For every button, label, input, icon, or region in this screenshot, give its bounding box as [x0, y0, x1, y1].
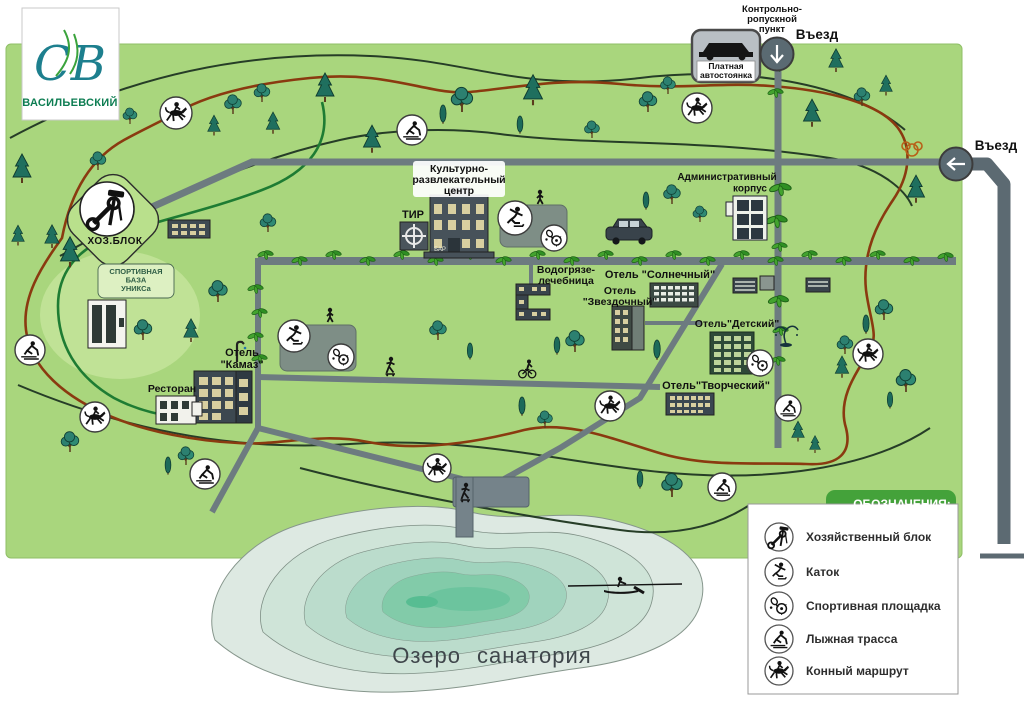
legend: ОБОЗНАЧЕНИЯ: Хозяйственный блок Каток Сп…	[748, 490, 958, 694]
admin-label-line2: корпус	[733, 184, 767, 195]
parking-label-line2: автостоянка	[700, 70, 752, 80]
tree	[887, 392, 892, 409]
ski-track-icon	[15, 335, 45, 365]
logo: СВ ВАСИЛЬЕВСКИЙ	[22, 8, 119, 120]
legend-item-label: Каток	[806, 565, 840, 579]
ice-rink-icon	[498, 201, 532, 235]
hotel-star-label-line2: "Звездочный"	[583, 296, 658, 308]
bar-label: БАР	[434, 247, 446, 253]
hotel-creative-label: Отель"Творческий"	[662, 380, 770, 392]
uniks-window	[92, 305, 102, 343]
building-barrack	[168, 220, 210, 238]
resort-map: Озеро санатория	[0, 0, 1024, 705]
lake-label: Озеро санатория	[392, 643, 591, 668]
legend-item-label: Спортивная площадка	[806, 599, 941, 613]
tree	[554, 337, 560, 355]
tree	[467, 343, 472, 360]
restaurant-label: Ресторан	[148, 383, 196, 395]
horse-route-icon	[682, 93, 712, 123]
hotel-kids-label: Отель"Детский"	[695, 318, 780, 330]
parking-sign: Платная автостоянка	[692, 30, 760, 82]
building-star	[612, 306, 644, 350]
ski-track-icon	[708, 473, 736, 501]
tir-label: ТИР	[402, 209, 424, 221]
admin-label-line1: Административный	[677, 172, 776, 183]
outer-road	[962, 164, 1004, 544]
admin-door-tab	[726, 202, 733, 216]
tree	[165, 457, 171, 475]
ski-track-icon	[397, 115, 427, 145]
hozblok-label: ХОЗ.БЛОК	[87, 236, 142, 247]
ski-track-icon	[190, 459, 220, 489]
entry-top-label: Въезд	[796, 27, 839, 42]
logo-monogram: СВ	[34, 36, 106, 92]
lake-deep-spot	[426, 587, 510, 611]
building-krc: БАР	[424, 188, 494, 258]
horse-route-icon	[80, 402, 110, 432]
checkpoint-label-line3: пункт	[759, 24, 786, 35]
uniks-window	[106, 305, 116, 343]
legend-title: ОБОЗНАЧЕНИЯ:	[853, 497, 951, 511]
shooting-range	[400, 222, 428, 250]
logo-title: ВАСИЛЬЕВСКИЙ	[22, 96, 117, 109]
ski-track-icon	[775, 395, 801, 421]
ice-rink-icon	[278, 320, 310, 352]
vodo-label-line2: лечебница	[538, 275, 594, 287]
lake-deepest-spot	[406, 596, 438, 608]
horse-route-icon	[595, 391, 625, 421]
hotel-kamaz-label-line1: Отель	[225, 347, 259, 359]
tree	[517, 116, 523, 134]
krc-label-line3: центр	[444, 185, 474, 197]
resort-map-page: Озеро санатория	[0, 0, 1024, 705]
legend-item-label: Лыжная трасса	[806, 632, 898, 646]
entry-right-label: Въезд	[975, 138, 1018, 153]
hotel-kamaz-label-line2: "Камаз"	[220, 359, 263, 371]
sports-ground-icon	[541, 225, 567, 251]
krc-door	[448, 238, 460, 253]
horse-route-icon	[423, 454, 451, 482]
sports-ground-icon	[747, 350, 773, 376]
uniks-label-line3: УНИКСа	[121, 284, 151, 293]
horse-route-icon	[160, 97, 192, 129]
building-restaurant	[156, 396, 202, 424]
tree	[637, 471, 643, 489]
legend-item-label: Конный маршрут	[806, 664, 909, 678]
legend-item-label: Хозяйственный блок	[806, 530, 932, 544]
horse-route-icon	[853, 339, 883, 369]
sports-ground-icon	[328, 344, 354, 370]
hotel-sunny-label: Отель "Солнечный"	[605, 269, 715, 281]
building-kamaz	[194, 371, 252, 423]
uniks-door	[119, 318, 124, 327]
tree	[643, 192, 649, 210]
building-creative	[666, 393, 714, 415]
